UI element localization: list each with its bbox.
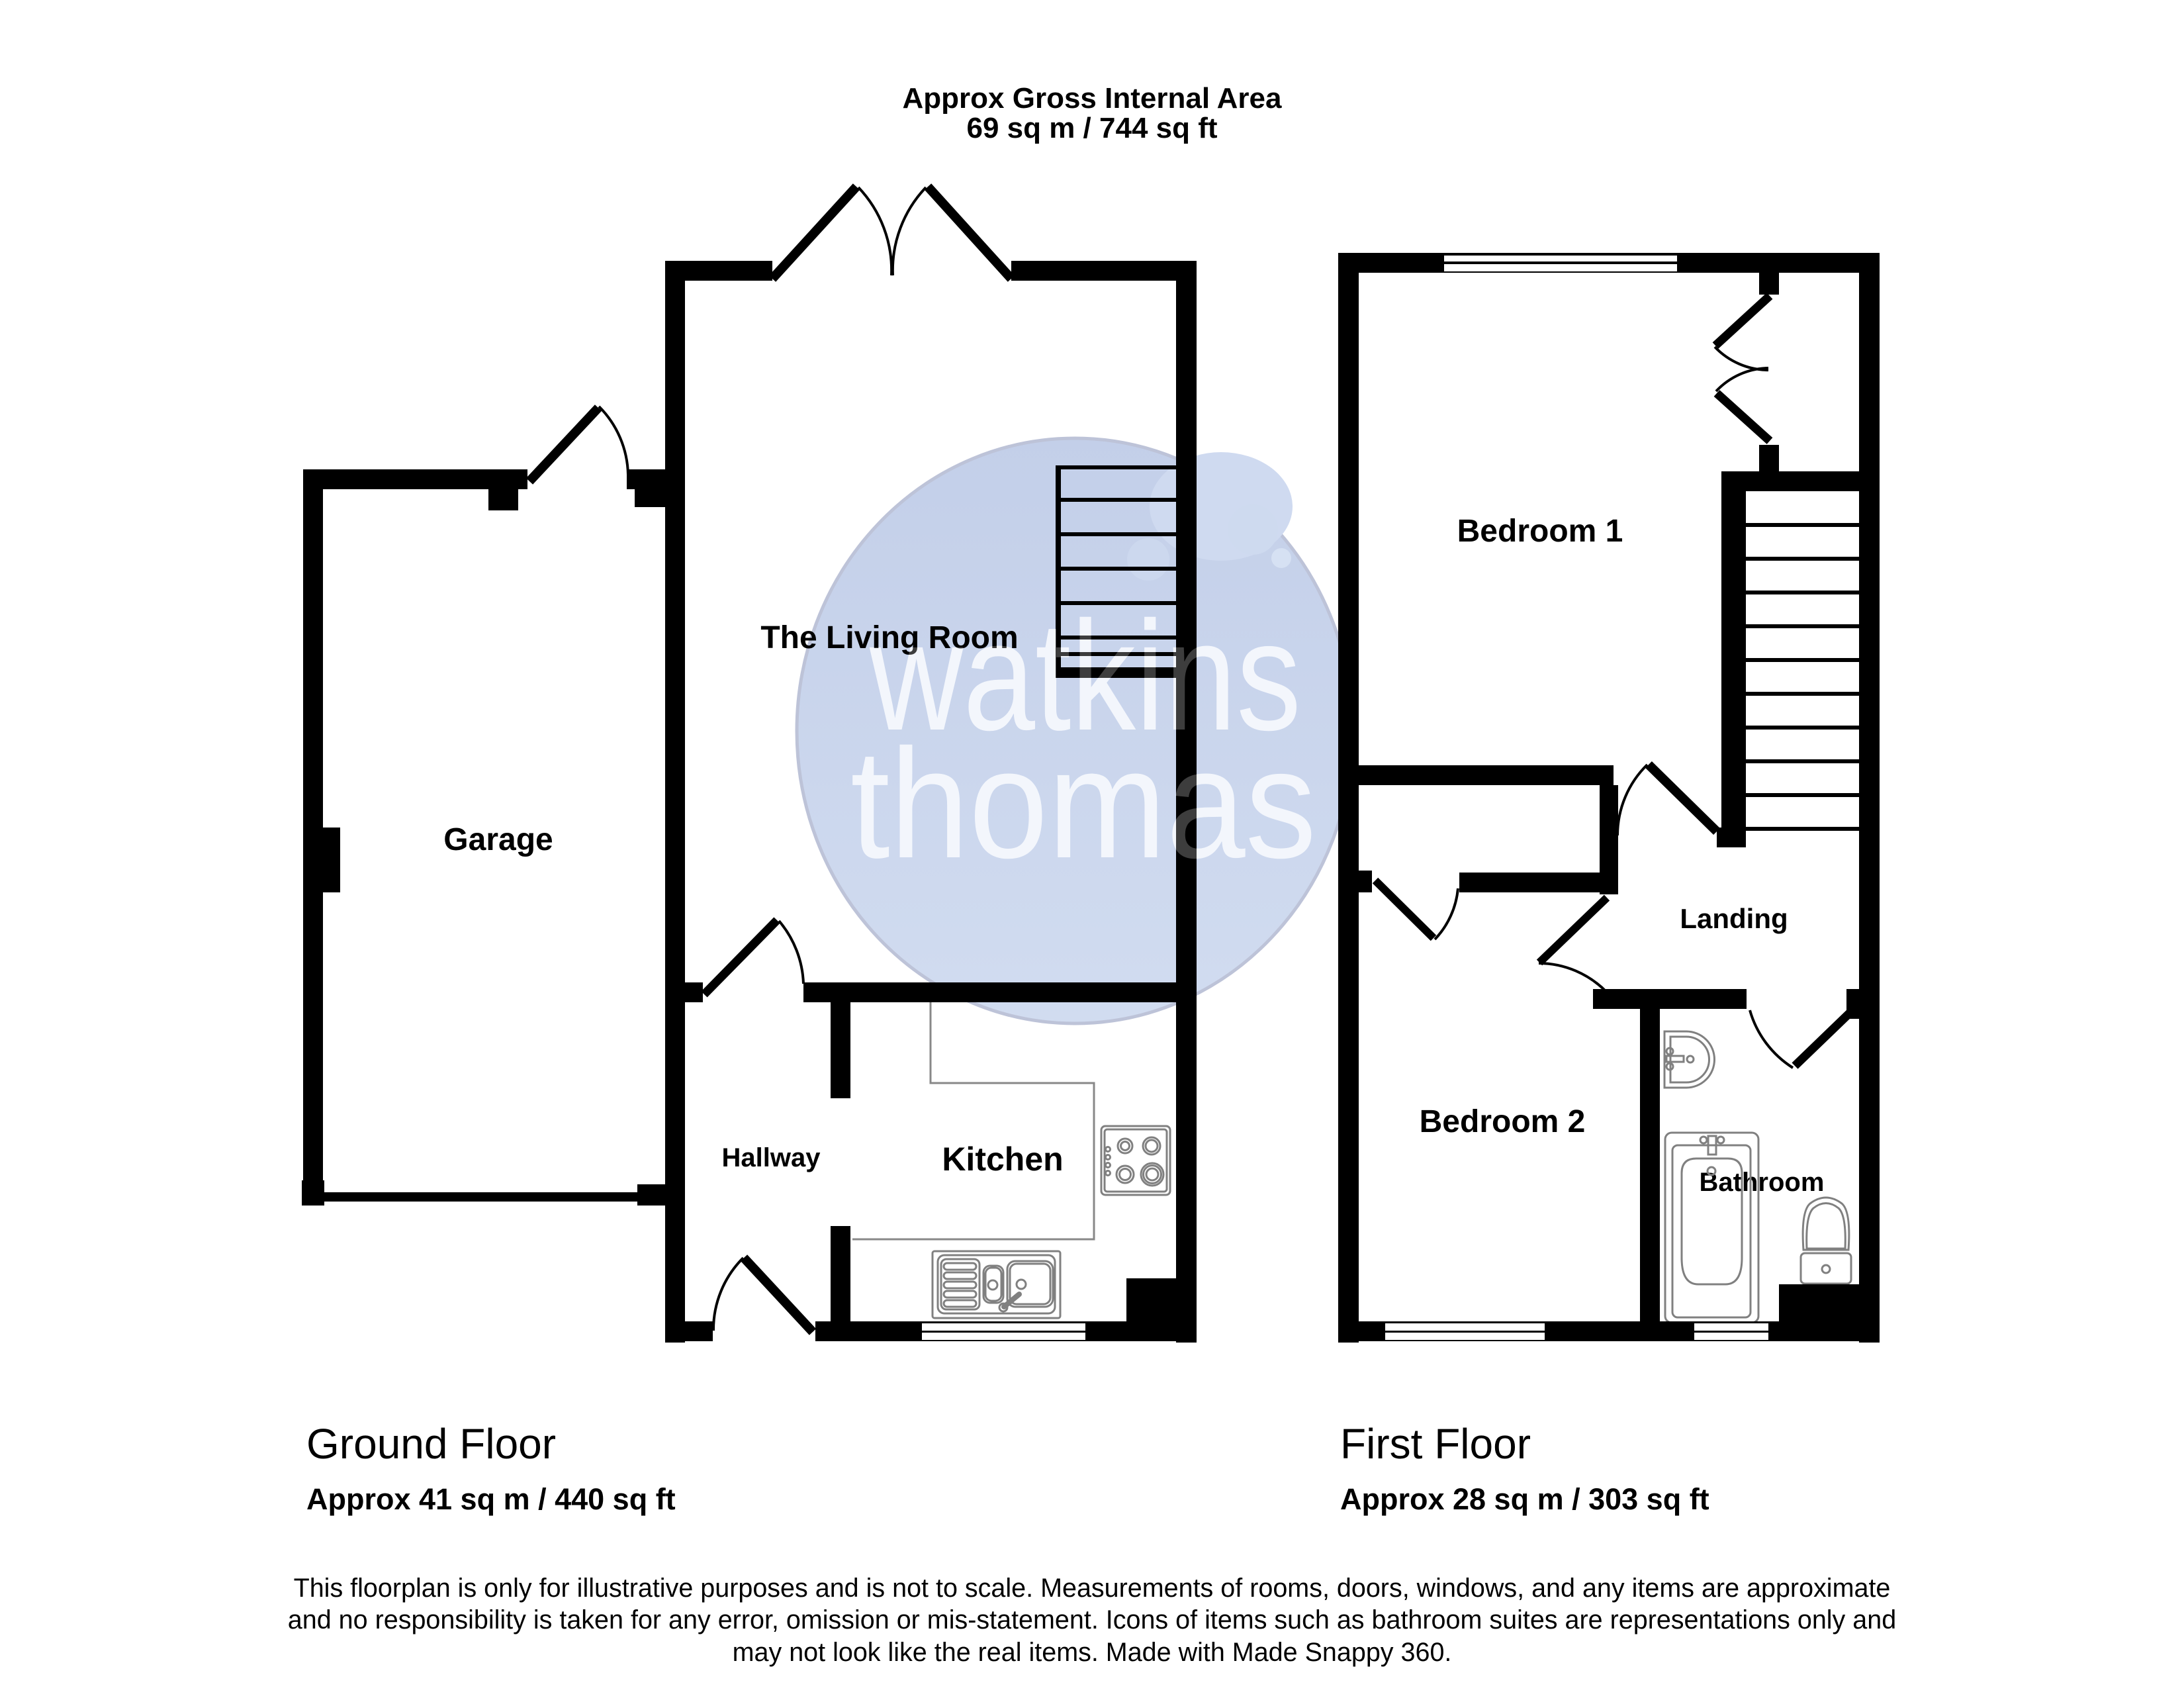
svg-text:Approx Gross Internal Area: Approx Gross Internal Area (903, 82, 1282, 115)
svg-text:Garage: Garage (443, 822, 553, 857)
svg-text:69 sq m / 744 sq ft: 69 sq m / 744 sq ft (966, 112, 1217, 144)
svg-text:Bedroom 1: Bedroom 1 (1457, 514, 1623, 549)
svg-text:Approx 41 sq m / 440 sq ft: Approx 41 sq m / 440 sq ft (306, 1482, 676, 1516)
svg-text:Hallway: Hallway (722, 1143, 821, 1172)
svg-text:and no responsibility is taken: and no responsibility is taken for any e… (288, 1605, 1896, 1634)
svg-text:may not look like the real ite: may not look like the real items. Made w… (733, 1638, 1452, 1667)
svg-text:Bedroom 2: Bedroom 2 (1420, 1104, 1586, 1139)
svg-text:Approx 28 sq m / 303 sq ft: Approx 28 sq m / 303 sq ft (1340, 1482, 1709, 1516)
svg-text:This floorplan is only for ill: This floorplan is only for illustrative … (294, 1574, 1891, 1603)
svg-text:Landing: Landing (1680, 903, 1788, 934)
svg-text:thomas: thomas (850, 716, 1316, 890)
svg-text:Bathroom: Bathroom (1700, 1168, 1825, 1197)
svg-text:First Floor: First Floor (1340, 1420, 1531, 1468)
svg-text:Ground Floor: Ground Floor (306, 1420, 556, 1468)
svg-text:Kitchen: Kitchen (942, 1141, 1063, 1178)
